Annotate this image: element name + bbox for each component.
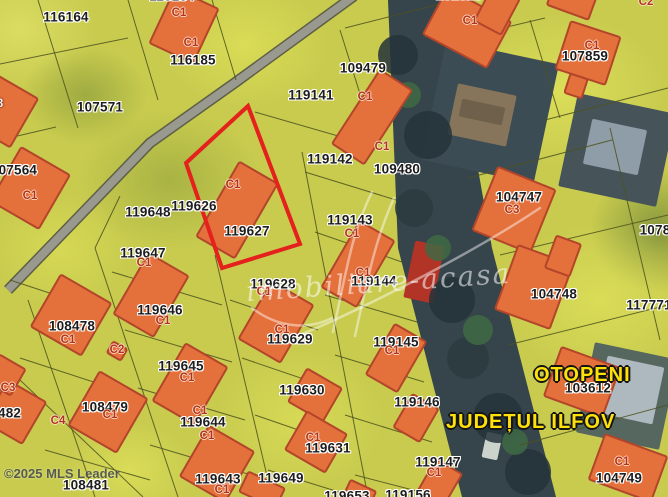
building bbox=[150, 0, 219, 63]
locality-label-otopeni: OTOPENI bbox=[534, 364, 631, 387]
building bbox=[196, 162, 277, 258]
tree-blob bbox=[378, 35, 418, 75]
tree-blob bbox=[429, 277, 475, 323]
building bbox=[114, 253, 189, 337]
parcel-boundary bbox=[38, 0, 78, 128]
building bbox=[285, 411, 347, 472]
building bbox=[344, 480, 376, 497]
building bbox=[0, 147, 70, 229]
copyright-watermark: ©2025 MLS Leader bbox=[4, 466, 120, 481]
parcel-boundary bbox=[0, 38, 128, 64]
building bbox=[394, 394, 439, 442]
county-label-judetul-ilfov: JUDEȚUL ILFOV bbox=[446, 411, 615, 434]
tree-blob bbox=[425, 235, 451, 261]
tree-blob bbox=[505, 449, 551, 495]
building bbox=[322, 221, 395, 307]
building bbox=[366, 324, 426, 392]
building bbox=[547, 0, 597, 20]
parcel-boundary bbox=[305, 172, 396, 200]
parcel-boundary bbox=[128, 0, 158, 100]
building bbox=[239, 472, 285, 497]
building bbox=[153, 343, 228, 424]
tree-blob bbox=[395, 189, 433, 227]
tree-blob bbox=[404, 111, 452, 159]
cadastral-map[interactable]: 1161841161641161851016261075711094791078… bbox=[0, 0, 668, 497]
building bbox=[556, 21, 621, 85]
building bbox=[545, 236, 581, 277]
building bbox=[69, 371, 148, 452]
building bbox=[107, 341, 127, 360]
tree-blob bbox=[463, 315, 493, 345]
